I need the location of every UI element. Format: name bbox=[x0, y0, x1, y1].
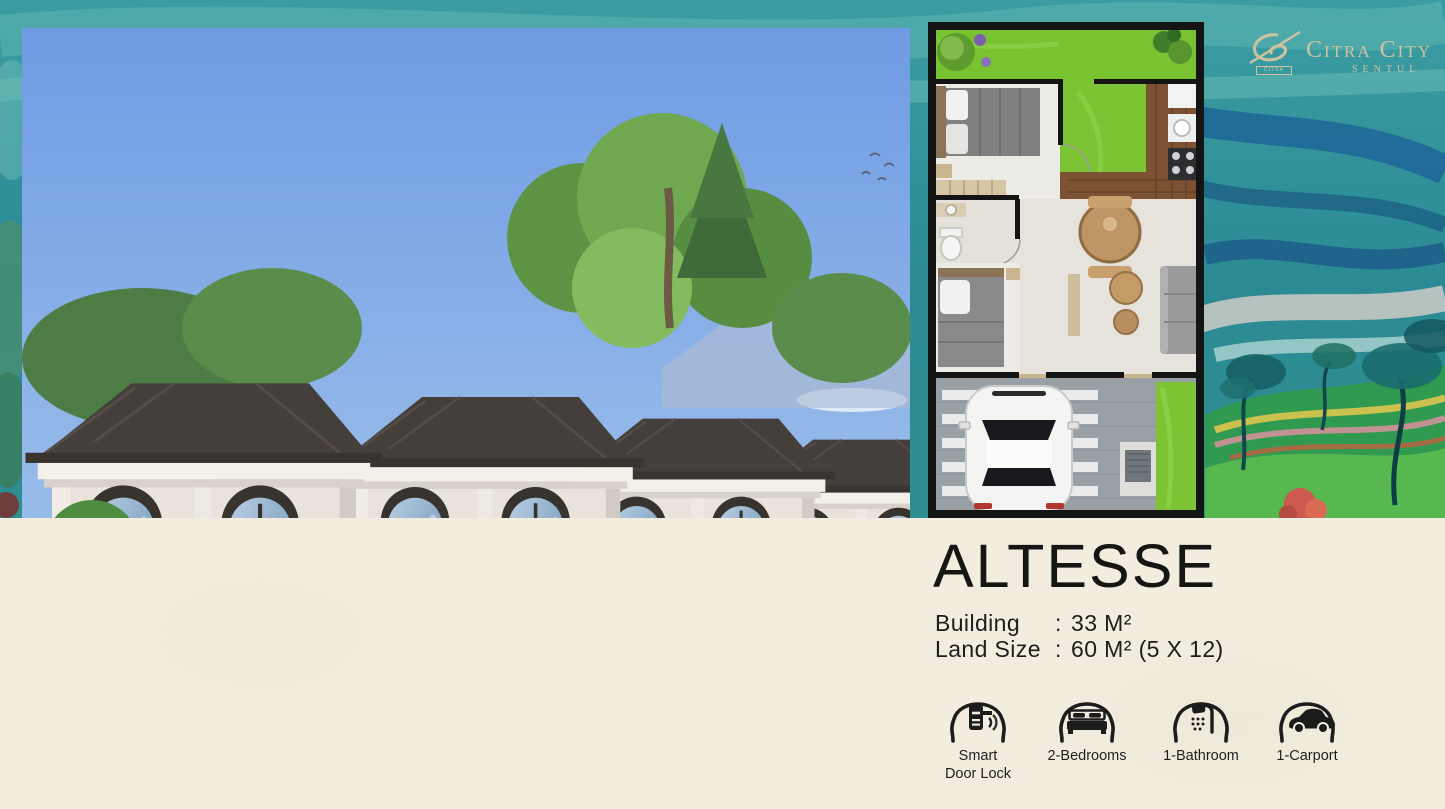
spec-row-building: Building : 33 M² bbox=[935, 610, 1224, 636]
brand-logo: CITRA Citra City SENTUL bbox=[1248, 26, 1434, 80]
product-title: ALTESSE bbox=[933, 536, 1217, 597]
spec-separator: : bbox=[1055, 636, 1071, 662]
spec-label: Building bbox=[935, 610, 1055, 636]
spec-label: Land Size bbox=[935, 636, 1055, 662]
feature-smart-door-lock: Smart Door Lock bbox=[930, 686, 1026, 783]
feature-label: 2-Bedrooms bbox=[1048, 747, 1127, 765]
spec-separator: : bbox=[1055, 610, 1071, 636]
feature-label: 1-Bathroom bbox=[1163, 747, 1239, 765]
car-icon bbox=[1274, 686, 1340, 744]
citra-swoosh-icon: CITRA bbox=[1248, 26, 1302, 80]
brand-name: Citra City bbox=[1306, 38, 1432, 62]
feature-bathroom: 1-Bathroom bbox=[1148, 686, 1254, 765]
brand-subname: SENTUL bbox=[1306, 65, 1432, 75]
feature-bedrooms: 2-Bedrooms bbox=[1026, 686, 1148, 765]
floorplan-image bbox=[928, 22, 1204, 518]
feature-carport: 1-Carport bbox=[1254, 686, 1360, 765]
feature-list: Smart Door Lock 2-Bedrooms bbox=[930, 686, 1360, 783]
feature-label: Smart Door Lock bbox=[942, 747, 1014, 783]
feature-label: 1-Carport bbox=[1276, 747, 1337, 765]
spec-row-land-size: Land Size : 60 M² (5 X 12) bbox=[935, 636, 1224, 662]
spec-list: Building : 33 M² Land Size : 60 M² (5 X … bbox=[935, 610, 1224, 662]
logo-mark-text: CITRA bbox=[1256, 66, 1292, 75]
shower-icon bbox=[1168, 686, 1234, 744]
spec-value: 33 M² bbox=[1071, 610, 1132, 636]
spec-value: 60 M² (5 X 12) bbox=[1071, 636, 1224, 662]
smart-door-lock-icon bbox=[945, 686, 1011, 744]
brochure-page: CITRA Citra City SENTUL ALTESSE Building… bbox=[0, 0, 1445, 809]
bed-icon bbox=[1054, 686, 1120, 744]
